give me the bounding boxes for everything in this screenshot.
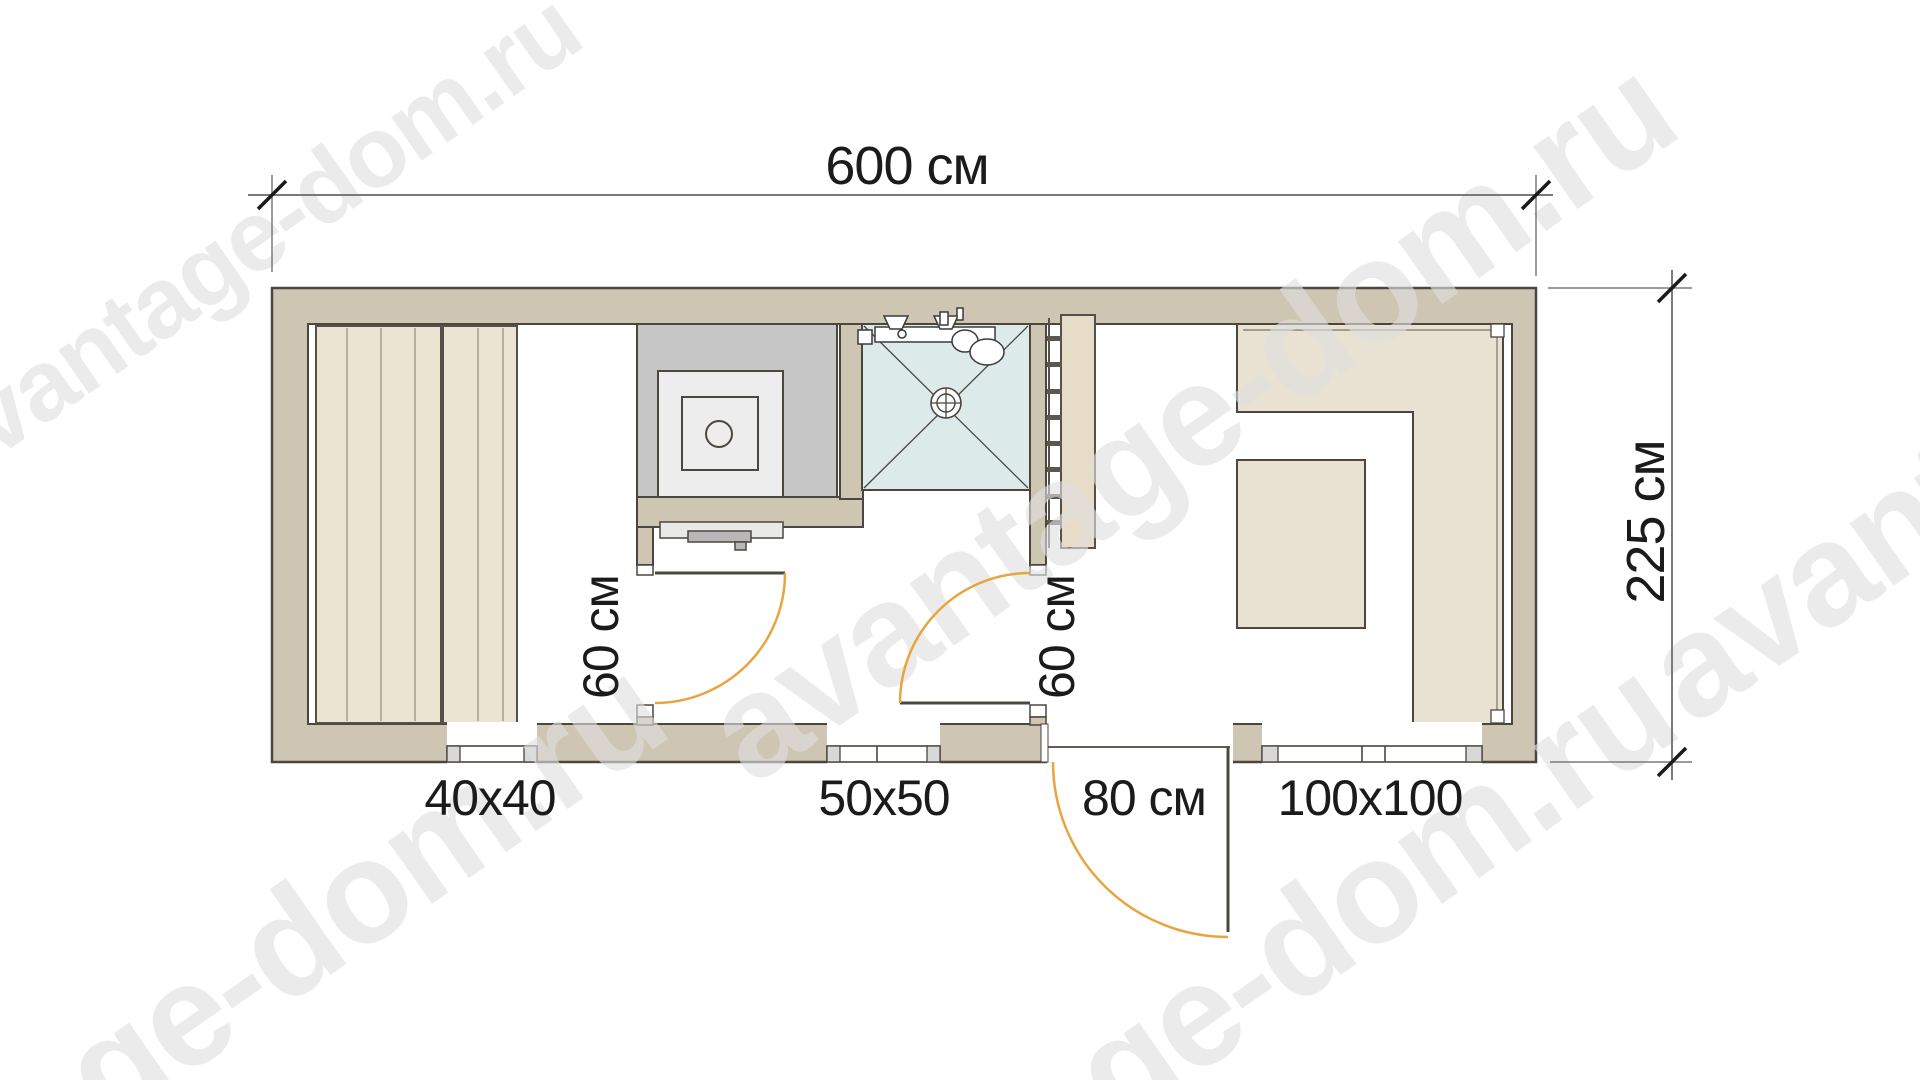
washroom-window-label: 50x50 [818,769,949,827]
overall-width-label: 600 см [825,135,988,197]
rest-room-window-label: 100x100 [1278,769,1463,827]
door-swing-sauna [655,573,785,703]
sauna-window-label: 40x40 [424,769,555,827]
washroom-door-label: 60 см [1028,575,1086,699]
overall-depth-label: 225 см [1615,440,1677,603]
floor-plan-screenshot: avantage-dom.ru avantage-dom.ru avantage… [0,0,1920,1080]
sauna-door-label: 60 см [572,575,630,699]
entrance-door-label: 80 см [1082,769,1206,827]
door-swing-washroom [900,573,1030,703]
